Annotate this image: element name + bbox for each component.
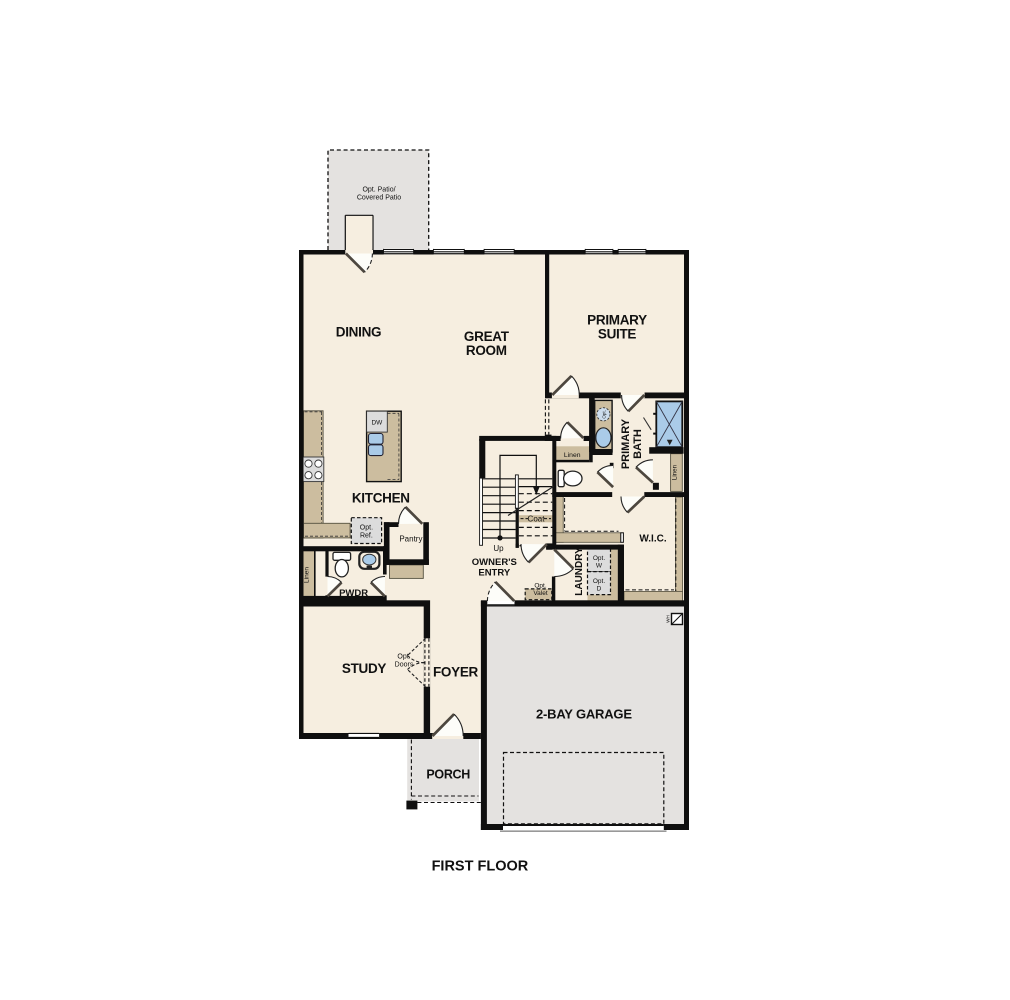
- svg-text:DW: DW: [371, 420, 383, 427]
- svg-text:Valet: Valet: [533, 590, 548, 597]
- svg-text:Opt.: Opt.: [360, 524, 373, 531]
- svg-text:Pantry: Pantry: [399, 535, 422, 544]
- svg-text:Linen: Linen: [303, 567, 310, 583]
- svg-text:STUDY: STUDY: [342, 661, 387, 676]
- svg-text:Linen: Linen: [564, 452, 581, 459]
- svg-text:PWDR: PWDR: [339, 588, 368, 599]
- svg-text:Opt.: Opt.: [593, 578, 605, 585]
- svg-text:Doors: Doors: [395, 662, 414, 669]
- svg-text:SUITE: SUITE: [598, 327, 637, 342]
- svg-text:Covered Patio: Covered Patio: [357, 195, 401, 202]
- svg-text:Opt. Patio/: Opt. Patio/: [362, 187, 395, 194]
- svg-text:W: W: [596, 563, 603, 570]
- svg-text:Linen: Linen: [672, 464, 679, 480]
- svg-text:KITCHEN: KITCHEN: [352, 491, 410, 506]
- svg-text:WH: WH: [666, 615, 671, 623]
- svg-text:Opt.: Opt.: [602, 410, 607, 419]
- svg-text:FOYER: FOYER: [433, 665, 479, 680]
- svg-text:PRIMARY: PRIMARY: [620, 418, 632, 469]
- svg-text:ROOM: ROOM: [466, 343, 507, 358]
- svg-text:PORCH: PORCH: [426, 768, 470, 782]
- svg-text:BATH: BATH: [632, 429, 644, 459]
- svg-text:GREAT: GREAT: [464, 329, 510, 344]
- svg-text:LAUNDRY: LAUNDRY: [574, 547, 585, 596]
- svg-text:Up: Up: [493, 544, 504, 553]
- svg-text:W.I.C.: W.I.C.: [639, 534, 666, 545]
- svg-text:Opt.: Opt.: [397, 654, 410, 661]
- svg-text:ENTRY: ENTRY: [478, 568, 511, 579]
- svg-text:D: D: [597, 586, 602, 593]
- svg-text:PRIMARY: PRIMARY: [587, 313, 647, 328]
- svg-text:OWNER'S: OWNER'S: [472, 557, 517, 568]
- svg-text:Opt.: Opt.: [534, 583, 546, 590]
- svg-text:Coat: Coat: [528, 515, 546, 524]
- svg-text:DINING: DINING: [336, 325, 381, 340]
- svg-text:2-BAY GARAGE: 2-BAY GARAGE: [536, 706, 632, 721]
- svg-text:Opt.: Opt.: [593, 555, 605, 562]
- svg-text:FIRST FLOOR: FIRST FLOOR: [432, 858, 529, 874]
- svg-text:Ref.: Ref.: [360, 532, 373, 539]
